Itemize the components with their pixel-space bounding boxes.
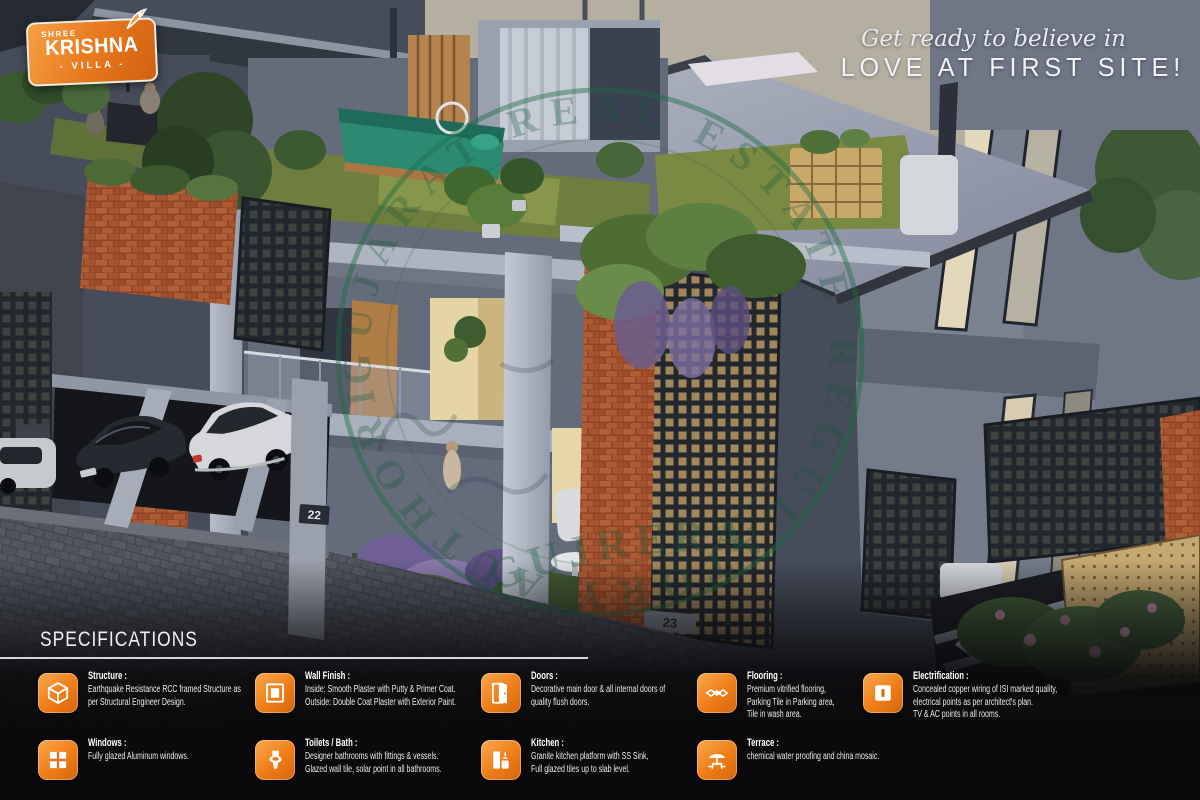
brand-logo: SHREE KRISHNA - VILLA - — [26, 17, 159, 87]
tagline-caps: LOVE AT FIRST SITE! — [841, 52, 1185, 83]
spec-item-windows: Windows : Fully glazed Aluminum windows. — [38, 737, 232, 780]
car-white-far — [0, 438, 56, 494]
spec-item-kitchen: Kitchen : Granite kitchen platform with … — [481, 737, 699, 780]
specifications-underline — [0, 657, 588, 659]
structure-icon — [38, 673, 78, 713]
spec-item-electrification: Electrification : Concealed copper wirin… — [863, 670, 1119, 722]
doors-icon — [481, 673, 521, 713]
spec-item-doors: Doors : Decorative main door & all inter… — [481, 670, 723, 713]
windows-icon — [38, 740, 78, 780]
spec-item-flooring: Flooring : Premium vitrified flooring, P… — [697, 670, 872, 722]
flooring-icon — [697, 673, 737, 713]
kitchen-icon — [481, 740, 521, 780]
electrification-icon — [863, 673, 903, 713]
toilets-icon — [255, 740, 295, 780]
tagline-script: Get ready to believe in — [861, 26, 1126, 52]
brochure-page: 23 — [0, 0, 1200, 800]
pillar-22: 22 — [288, 378, 330, 640]
spec-item-toilets: Toilets / Bath : Designer bathrooms with… — [255, 737, 500, 780]
svg-text:22: 22 — [307, 508, 322, 523]
peacock-feather-icon — [124, 5, 150, 33]
villa-number-22: 22 — [299, 504, 330, 525]
specifications-title: SPECIFICATIONS — [40, 628, 198, 652]
wall-finish-icon — [255, 673, 295, 713]
terrace-icon — [697, 740, 737, 780]
svg-text:23: 23 — [662, 615, 678, 631]
spec-item-terrace: Terrace : chemical water proofing and ch… — [697, 737, 936, 780]
